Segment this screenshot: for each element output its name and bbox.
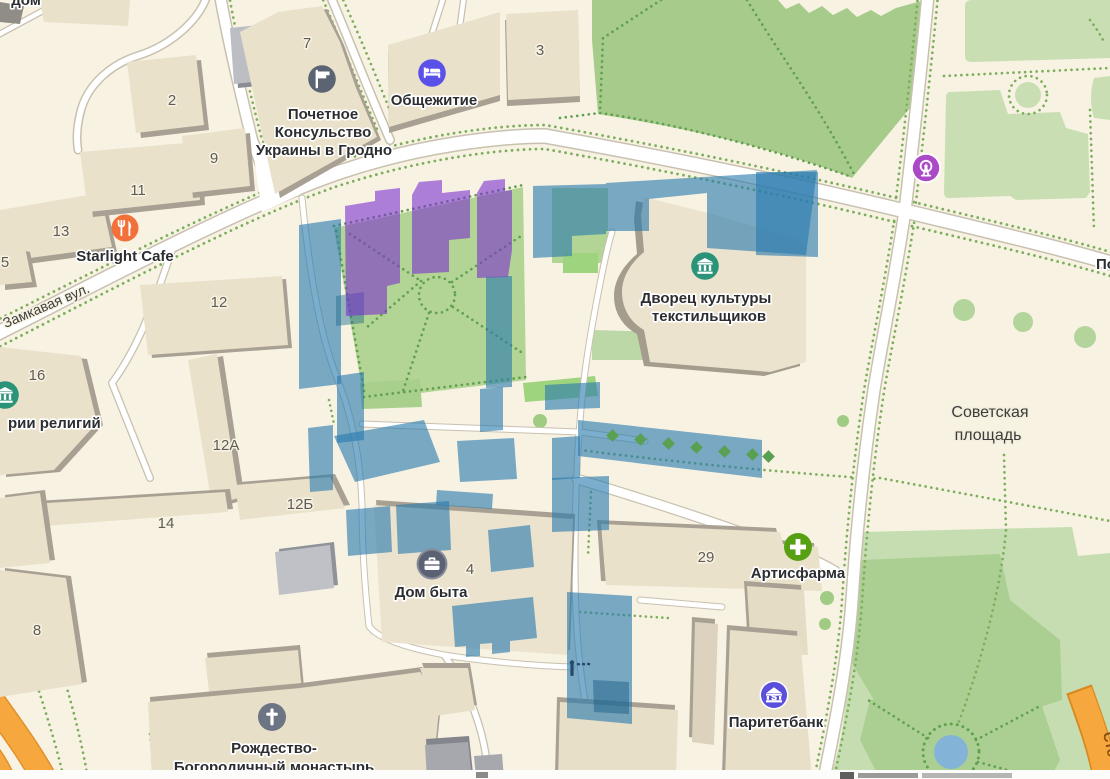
svg-text:5: 5 [1,254,9,271]
svg-text:2: 2 [168,92,176,109]
svg-text:4: 4 [466,561,474,578]
svg-text:12А: 12А [213,437,240,454]
svg-text:Почетное: Почетное [288,106,358,123]
svg-text:Консульство: Консульство [275,124,372,141]
svg-text:Артисфарма: Артисфарма [751,565,846,582]
svg-text:7: 7 [303,35,311,52]
svg-text:12Б: 12Б [287,496,314,513]
svg-text:9: 9 [210,150,218,167]
svg-text:16: 16 [29,367,46,384]
svg-text:Дом быта: Дом быта [395,584,469,601]
svg-text:Рождество-: Рождество- [231,740,317,757]
svg-text:площадь: площадь [955,427,1022,444]
svg-text:29: 29 [698,549,715,566]
svg-text:Украины в Гродно: Украины в Гродно [256,142,392,159]
svg-text:S: S [771,692,777,702]
svg-text:рии религий: рии религий [8,415,101,432]
svg-text:Паритетбанк: Паритетбанк [729,714,824,731]
svg-text:13: 13 [53,223,70,240]
svg-text:12: 12 [211,294,228,311]
svg-text:Общежитие: Общежитие [391,92,478,109]
svg-text:текстильщиков: текстильщиков [652,308,766,325]
svg-text:Советская: Советская [951,404,1028,421]
svg-text:8: 8 [33,622,41,639]
svg-text:3: 3 [536,42,544,59]
svg-text:11: 11 [130,182,146,199]
svg-text:дом: дом [11,0,41,9]
svg-text:По: По [1096,256,1110,273]
svg-text:14: 14 [158,515,175,532]
svg-text:Starlight Cafe: Starlight Cafe [76,248,174,265]
svg-text:Дворец культуры: Дворец культуры [641,290,772,307]
